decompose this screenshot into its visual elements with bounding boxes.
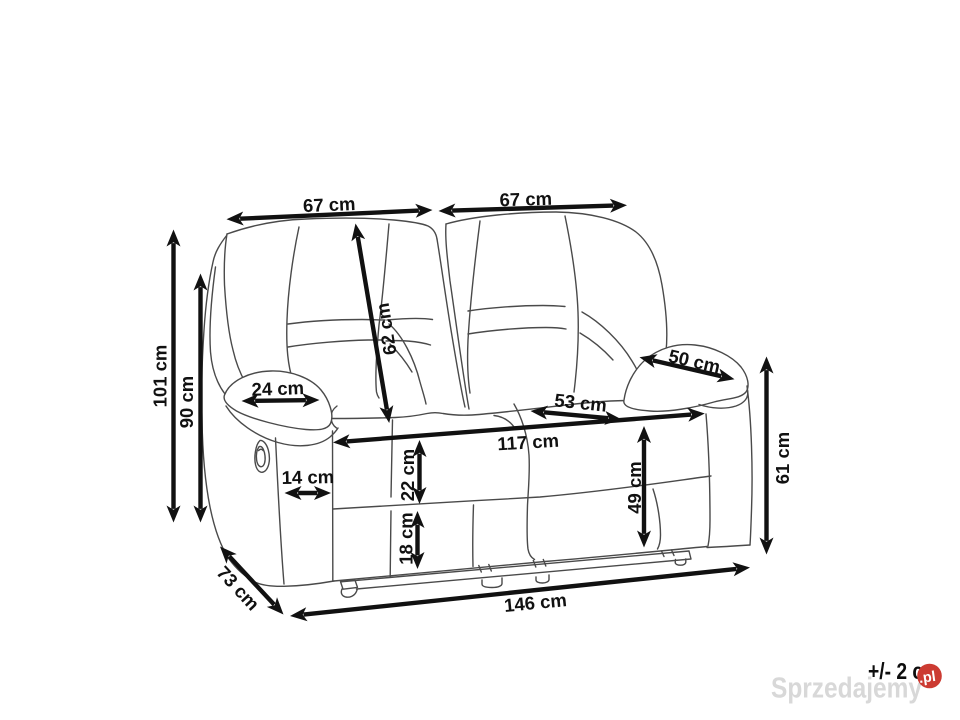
svg-text:61 cm: 61 cm (772, 432, 793, 484)
svg-text:14 cm: 14 cm (281, 466, 334, 488)
svg-text:90 cm: 90 cm (176, 376, 197, 428)
svg-text:49 cm: 49 cm (624, 461, 645, 513)
svg-text:67 cm: 67 cm (303, 193, 356, 216)
svg-text:101 cm: 101 cm (150, 345, 171, 408)
svg-text:22 cm: 22 cm (397, 449, 418, 501)
svg-text:.pl: .pl (918, 669, 937, 687)
svg-text:24 cm: 24 cm (251, 377, 304, 400)
svg-text:18 cm: 18 cm (396, 512, 417, 564)
svg-text:117 cm: 117 cm (497, 430, 560, 455)
svg-text:67 cm: 67 cm (499, 188, 552, 211)
